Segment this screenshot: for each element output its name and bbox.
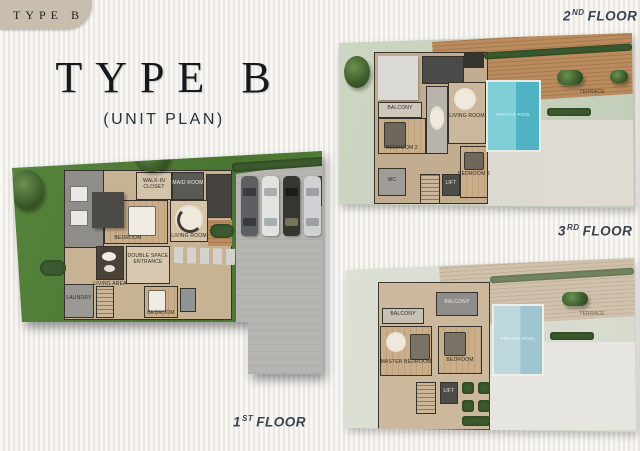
room-label-living-area: LIVING AREA: [92, 282, 128, 288]
page-subtitle: (UNIT PLAN): [18, 111, 308, 129]
bed-icon: [464, 152, 484, 170]
room-label-balcony-b: BALCONY: [436, 300, 478, 306]
planter-icon: [462, 382, 474, 394]
floor-ordinal: RD: [567, 223, 580, 232]
room-label-pool-2nd: PRIVATE POOL: [486, 112, 541, 117]
stepping-stones: [174, 247, 239, 265]
floor-word: FLOOR: [256, 415, 306, 430]
round-rug-icon: [454, 88, 476, 110]
room-label-wc: WC: [378, 178, 406, 184]
planter-icon: [478, 382, 490, 394]
bed-icon: [128, 206, 156, 236]
room-label-bedroom-3rd: BEDROOM: [438, 358, 482, 364]
tree-icon: [344, 56, 370, 88]
room-bath-2nd: [422, 56, 464, 84]
planter-icon: [462, 400, 474, 412]
room-label-living-2nd: LIVING ROOM: [448, 114, 486, 120]
furniture: [70, 186, 88, 202]
room-label-bedroom: BEDROOM: [108, 236, 148, 242]
site-plot-3rd: TERRACE PRIVATE POOL BALCONY MASTER BEDR…: [344, 254, 640, 440]
floor-label-3rd: 3RDFLOOR: [558, 223, 632, 239]
unit-plan-page: TYPE B TYPE B (UNIT PLAN): [0, 0, 640, 451]
room-utility: [206, 174, 232, 218]
car-icon: [262, 176, 279, 236]
room-label-bedroom3: BEDROOM 3: [458, 172, 490, 178]
patio-3rd: [544, 342, 636, 430]
room-label-lift-3rd: LIFT: [440, 389, 458, 395]
bush-icon: [562, 292, 588, 306]
room-label-entrance: DOUBLE SPACE ENTRANCE: [126, 254, 170, 266]
room-label-balcony-2nd: BALCONY: [378, 106, 422, 112]
floor-plan-2nd: TERRACE PRIVATE POOL BALCONY: [336, 28, 638, 214]
coffee-table-icon: [104, 265, 115, 272]
floor-plan-3rd: TERRACE PRIVATE POOL BALCONY MASTER BEDR…: [344, 254, 640, 440]
floor-label-1st: 1STFLOOR: [233, 414, 306, 430]
floor-number: 1: [233, 415, 241, 430]
room-label-master: MASTER BEDROOM: [380, 360, 432, 366]
bed-icon: [444, 332, 466, 356]
room-label-bedroom2: BEDROOM 2: [378, 146, 426, 152]
bed-icon: [410, 334, 430, 360]
floor-number: 3: [558, 224, 566, 239]
car-icon: [283, 176, 300, 236]
round-rug-icon: [386, 332, 406, 352]
car-icon: [241, 176, 258, 236]
car-icon: [304, 176, 321, 236]
roof-patch: [92, 192, 124, 228]
title-block: TYPE B (UNIT PLAN): [18, 52, 308, 129]
bush-icon: [210, 224, 234, 238]
bed-icon: [148, 290, 166, 312]
type-b-badge-label: TYPE B: [8, 8, 84, 23]
room-label-closet: WALK-IN CLOSET: [136, 179, 172, 191]
pool-walk-3rd: [490, 374, 546, 430]
roof-slab: [378, 56, 418, 100]
room-label-maid: MAID ROOM: [172, 181, 204, 187]
room-label-terrace-2nd: TERRACE: [572, 90, 612, 96]
room-label-pool-3rd: PRIVATE POOL: [492, 336, 544, 341]
floor-ordinal: ST: [242, 414, 253, 423]
bush-icon: [40, 260, 66, 276]
floor-word: FLOOR: [583, 224, 633, 239]
floor-word: FLOOR: [588, 9, 638, 24]
hedge-icon: [547, 108, 591, 116]
room-label-terrace-3rd: TERRACE: [572, 312, 612, 318]
floor-label-2nd: 2NDFLOOR: [563, 8, 637, 24]
tree-icon: [10, 170, 44, 210]
floor-plan-1st: MAID ROOM WALK-IN CLOSET BEDROOM LIVING …: [8, 148, 332, 400]
page-title: TYPE B: [18, 52, 308, 103]
bush-icon: [557, 70, 583, 85]
site-plot-2nd: TERRACE PRIVATE POOL BALCONY: [336, 28, 638, 214]
tree-icon: [134, 140, 170, 172]
patio: [541, 120, 634, 206]
room-label-balcony-a: BALCONY: [382, 312, 424, 318]
room-utility-2nd: [464, 52, 484, 68]
planter-icon: [478, 400, 490, 412]
planter-icon: [462, 416, 490, 426]
pool-walk: [486, 152, 543, 206]
hedge-icon: [550, 332, 594, 340]
staircase: [96, 286, 114, 318]
room-label-laundry: LAUNDRY: [64, 296, 94, 302]
staircase-2nd: [420, 174, 440, 204]
floor-ordinal: ND: [572, 8, 585, 17]
void-rug: [430, 106, 444, 130]
room-label-bedroom-south: BEDROOM: [144, 311, 178, 317]
sofa-icon: [177, 207, 203, 233]
floor-number: 2: [563, 9, 571, 24]
coffee-table-icon: [102, 252, 116, 261]
room-bath: [180, 288, 196, 312]
furniture: [70, 210, 88, 226]
bush-icon: [610, 70, 628, 83]
room-label-lift-2nd: LIFT: [442, 181, 460, 187]
room-label-living-room: LIVING ROOM: [170, 234, 208, 240]
site-plot-1st: MAID ROOM WALK-IN CLOSET BEDROOM LIVING …: [8, 148, 332, 400]
type-b-badge: TYPE B: [0, 0, 92, 30]
staircase-3rd: [416, 382, 436, 414]
